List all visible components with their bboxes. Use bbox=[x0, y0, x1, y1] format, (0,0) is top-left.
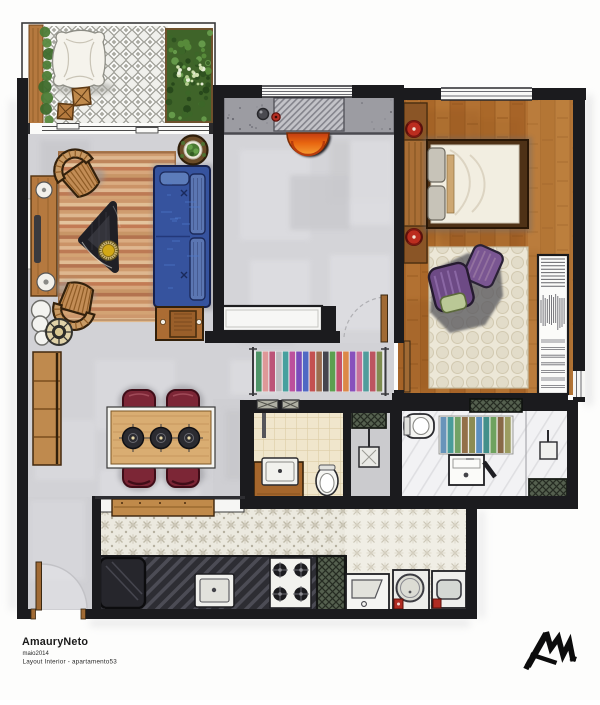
svg-text:Layout Interior - apartamento5: Layout Interior - apartamento53 bbox=[23, 659, 118, 666]
svg-text:AmauryNeto: AmauryNeto bbox=[22, 636, 88, 648]
svg-text:maio2014: maio2014 bbox=[23, 651, 50, 657]
